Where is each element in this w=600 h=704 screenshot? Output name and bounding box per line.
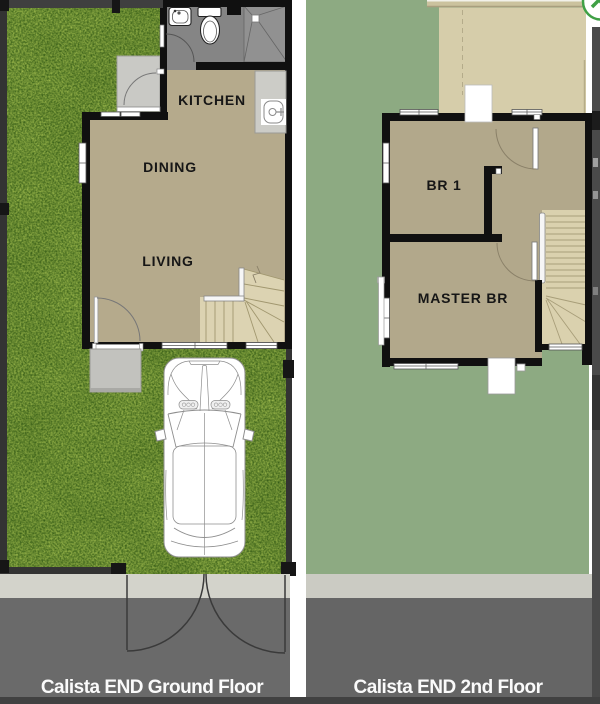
svg-text:MASTER BR: MASTER BR [418,290,508,306]
svg-text:LIVING: LIVING [142,253,193,269]
svg-text:Calista END Ground Floor: Calista END Ground Floor [41,677,264,698]
svg-text:DINING: DINING [143,159,197,175]
svg-text:Calista END 2nd Floor: Calista END 2nd Floor [353,677,543,698]
svg-text:BR 1: BR 1 [426,177,461,193]
svg-text:KITCHEN: KITCHEN [178,92,246,108]
